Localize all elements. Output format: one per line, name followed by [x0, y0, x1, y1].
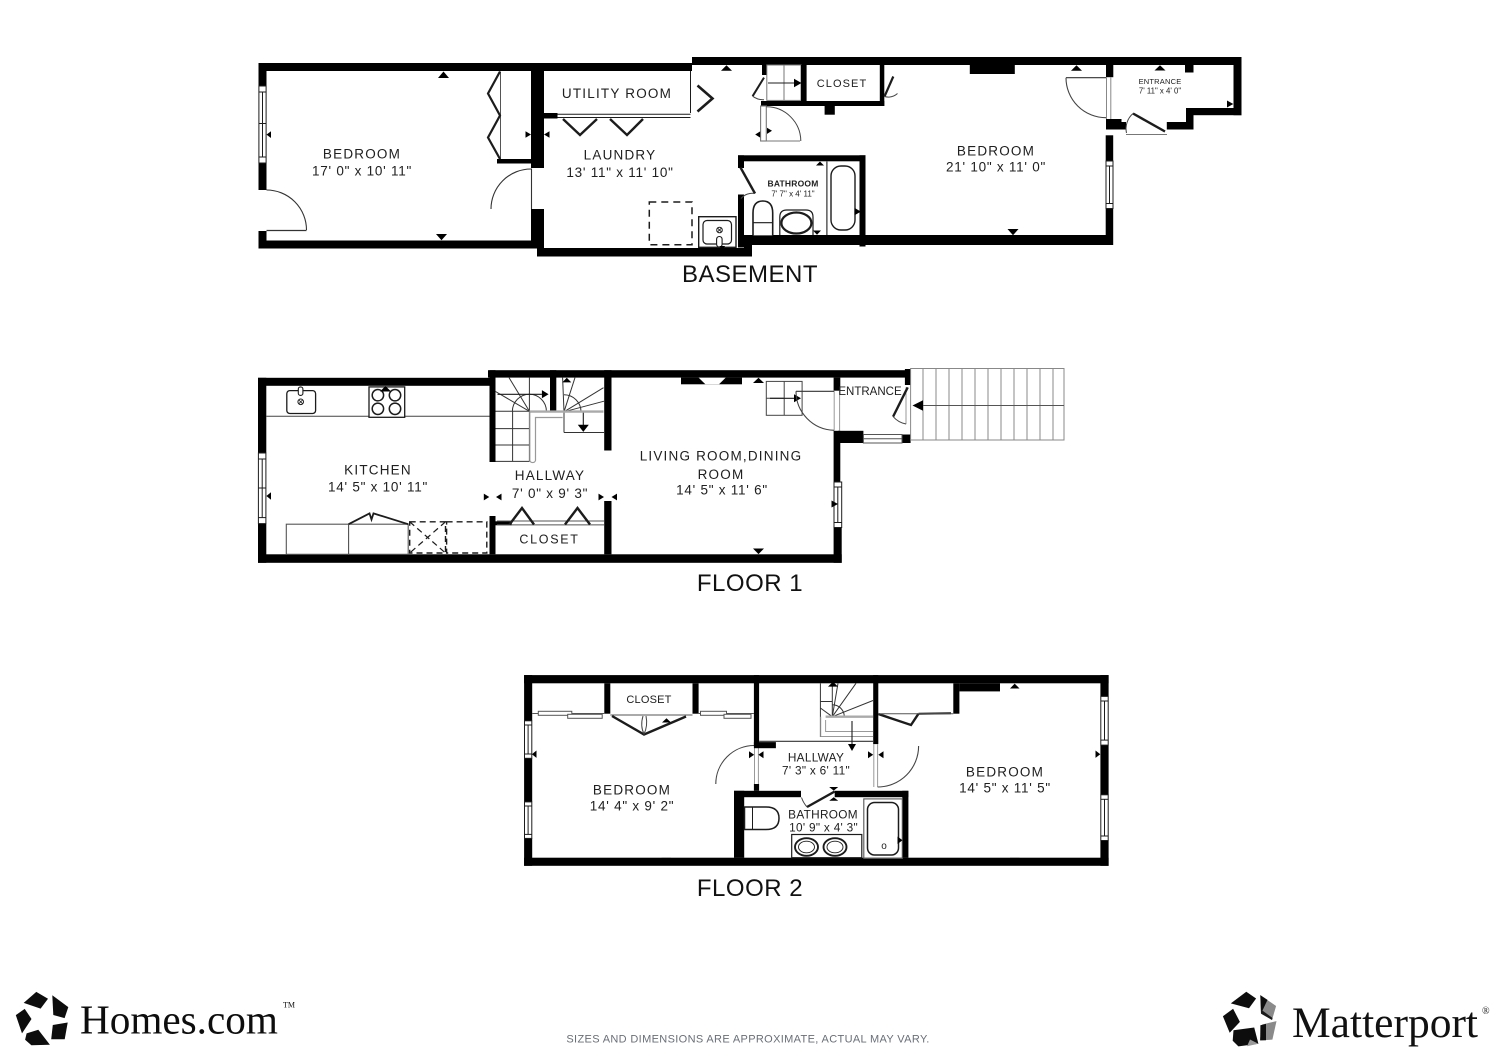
svg-text:14' 5" x 10' 11": 14' 5" x 10' 11": [328, 480, 428, 495]
svg-text:7' 0" x 9' 3": 7' 0" x 9' 3": [512, 486, 588, 501]
svg-text:o: o: [881, 841, 887, 852]
svg-text:SIZES AND DIMENSIONS ARE APPRO: SIZES AND DIMENSIONS ARE APPROXIMATE, AC…: [566, 1034, 929, 1046]
svg-text:FLOOR 2: FLOOR 2: [697, 875, 803, 902]
svg-text:CLOSET: CLOSET: [519, 533, 579, 547]
svg-text:UTILITY ROOM: UTILITY ROOM: [562, 86, 672, 101]
svg-text:7' 3" x 6' 11": 7' 3" x 6' 11": [782, 764, 850, 778]
svg-text:BEDROOM: BEDROOM: [593, 783, 671, 798]
svg-text:14' 5" x 11' 6": 14' 5" x 11' 6": [676, 483, 768, 498]
svg-text:Homes.com: Homes.com: [80, 997, 278, 1043]
svg-text:HALLWAY: HALLWAY: [515, 468, 585, 483]
svg-text:ROOM: ROOM: [698, 467, 745, 482]
svg-text:BEDROOM: BEDROOM: [966, 765, 1044, 780]
svg-text:21' 10" x 11' 0": 21' 10" x 11' 0": [946, 160, 1046, 175]
svg-text:BEDROOM: BEDROOM: [323, 147, 401, 162]
svg-text:BATHROOM: BATHROOM: [788, 808, 858, 822]
svg-text:BATHROOM: BATHROOM: [767, 179, 818, 189]
svg-text:FLOOR 1: FLOOR 1: [697, 570, 803, 597]
svg-text:KITCHEN: KITCHEN: [344, 463, 412, 478]
svg-text:TM: TM: [283, 1001, 295, 1010]
svg-text:13' 11" x 11' 10": 13' 11" x 11' 10": [566, 165, 673, 180]
svg-text:®: ®: [1482, 1006, 1490, 1017]
svg-text:BASEMENT: BASEMENT: [682, 261, 818, 288]
svg-text:CLOSET: CLOSET: [626, 694, 671, 706]
svg-text:LAUNDRY: LAUNDRY: [584, 148, 657, 163]
svg-text:ENTRANCE: ENTRANCE: [838, 386, 902, 398]
svg-text:10' 9" x 4' 3": 10' 9" x 4' 3": [789, 821, 858, 835]
svg-text:7' 7" x 4' 11": 7' 7" x 4' 11": [771, 190, 814, 199]
svg-text:7' 11" x 4' 0": 7' 11" x 4' 0": [1139, 87, 1181, 96]
svg-text:14' 4" x 9' 2": 14' 4" x 9' 2": [590, 799, 675, 814]
svg-text:CLOSET: CLOSET: [817, 78, 868, 90]
svg-text:HALLWAY: HALLWAY: [788, 751, 844, 765]
svg-text:Matterport: Matterport: [1292, 999, 1478, 1047]
svg-text:17' 0" x 10' 11": 17' 0" x 10' 11": [312, 164, 412, 179]
svg-text:ENTRANCE: ENTRANCE: [1139, 77, 1182, 86]
svg-text:BEDROOM: BEDROOM: [957, 144, 1035, 159]
svg-text:LIVING ROOM,DINING: LIVING ROOM,DINING: [640, 449, 803, 464]
svg-text:14' 5" x 11' 5": 14' 5" x 11' 5": [959, 781, 1051, 796]
